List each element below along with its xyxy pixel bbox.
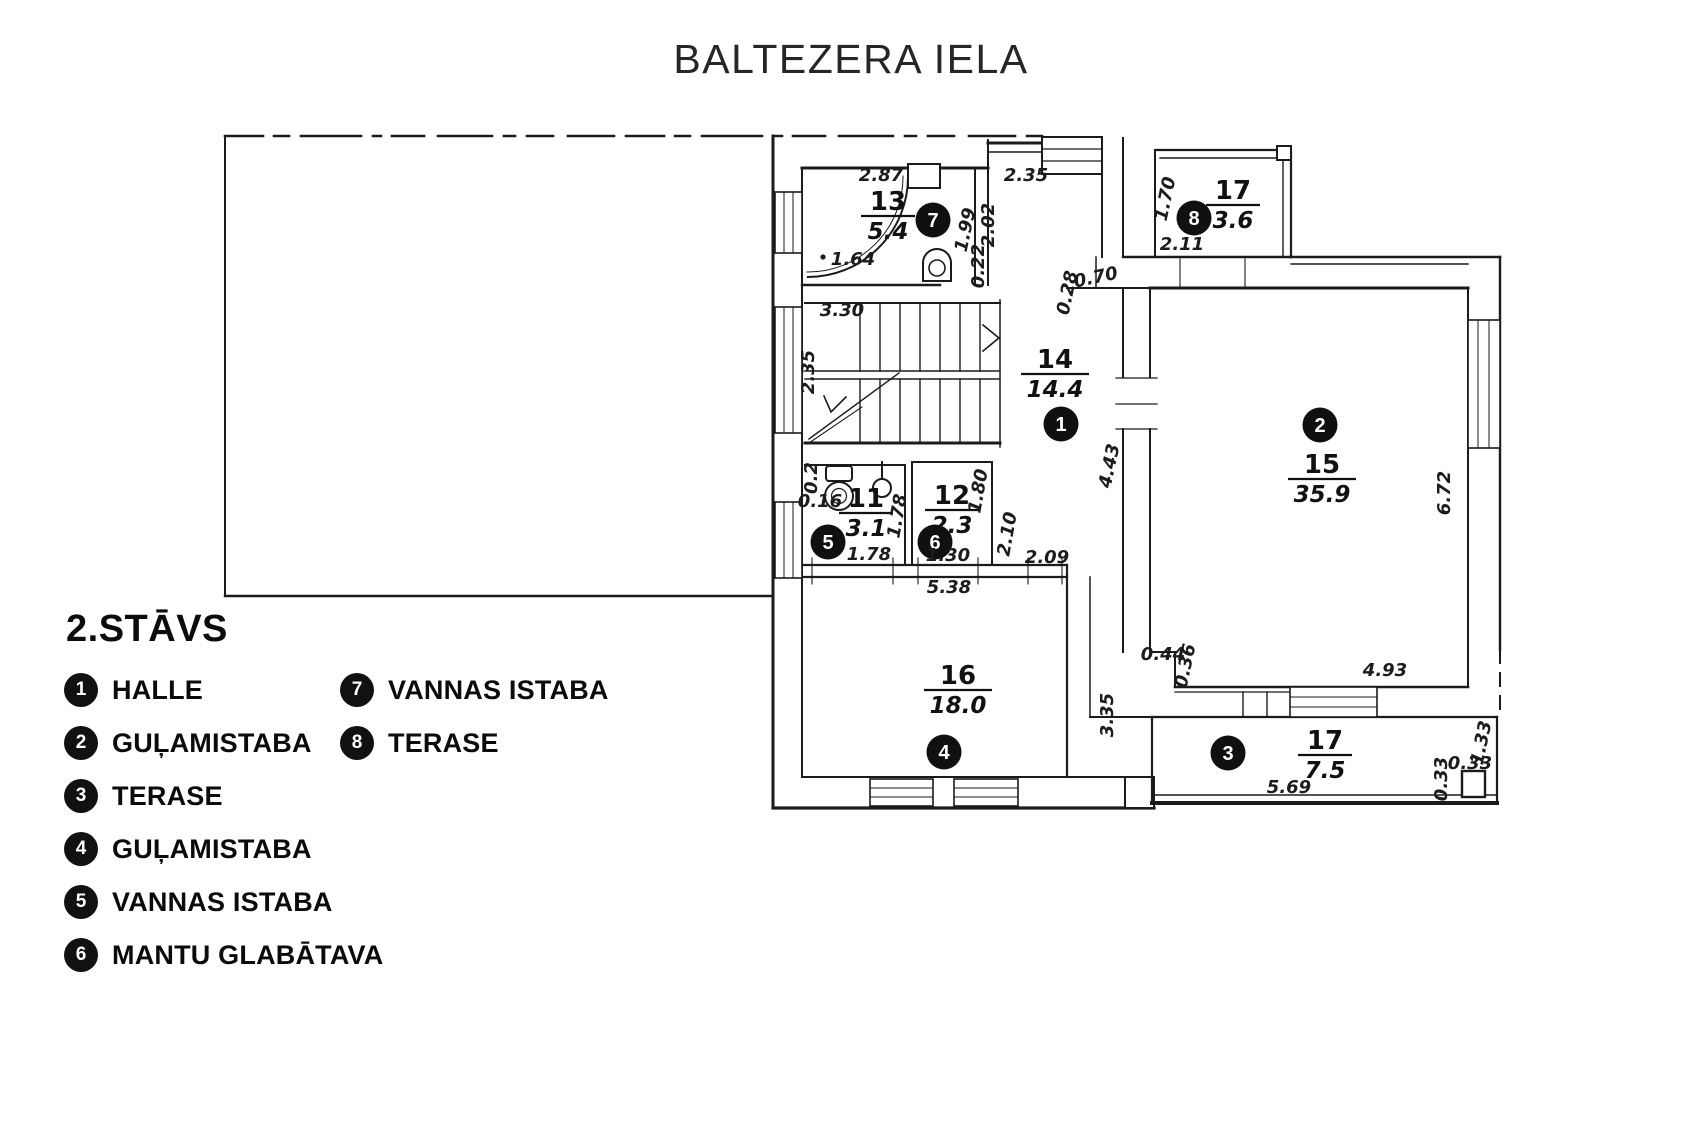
legend-item-5: 5VANNAS ISTABA <box>64 885 340 919</box>
legend-item-1: 1HALLE <box>64 673 340 707</box>
legend-column-1: 1HALLE2GUĻAMISTABA3TERASE4GUĻAMISTABA5VA… <box>64 673 340 991</box>
room-number-badge: 6 <box>64 938 98 972</box>
dimension-label: 2.87 <box>859 165 904 186</box>
room-area: 3.6 <box>1213 208 1254 234</box>
dimension-label: 1.78 <box>883 492 911 539</box>
room-number: 14 <box>1037 345 1073 375</box>
stairs-icon <box>805 303 1000 443</box>
room-label-13-badge-7: 135.47 <box>861 187 951 245</box>
room-number: 17 <box>1215 176 1251 206</box>
room-number-badge: 4 <box>64 832 98 866</box>
door-opening <box>1117 378 1156 428</box>
legend-columns: 1HALLE2GUĻAMISTABA3TERASE4GUĻAMISTABA5VA… <box>64 673 609 991</box>
dimension-label: 1.64 <box>831 249 875 270</box>
legend-item-8: 8TERASE <box>340 726 609 760</box>
dimension-label: 0.33 <box>1431 757 1452 801</box>
room-number-badge: 8 <box>340 726 374 760</box>
legend-label: GUĻAMISTABA <box>112 834 312 865</box>
room-number-badge: 5 <box>64 885 98 919</box>
dimension-label: 1.30 <box>926 545 970 566</box>
room-area: 18.0 <box>930 693 987 719</box>
plan-badge-number: 4 <box>938 742 950 764</box>
room-number: 13 <box>870 187 906 217</box>
room-number: 15 <box>1304 450 1340 480</box>
room-number-badge: 7 <box>340 673 374 707</box>
legend: 2.STĀVS 1HALLE2GUĻAMISTABA3TERASE4GUĻAMI… <box>64 608 609 991</box>
room-number: 17 <box>1307 726 1343 756</box>
legend-label: TERASE <box>388 728 499 759</box>
legend-item-6: 6MANTU GLABĀTAVA <box>64 938 340 972</box>
dimension-label: 0.28 <box>1053 269 1083 317</box>
dimension-label: 2.02 <box>978 203 999 247</box>
dimension-labels: 2.871.640.221.992.022.353.302.351.702.11… <box>798 165 1497 801</box>
legend-label: MANTU GLABĀTAVA <box>112 940 383 971</box>
dimension-label: 2.35 <box>798 350 819 394</box>
legend-label: VANNAS ISTABA <box>388 675 609 706</box>
room-label-16-badge-4: 1618.04 <box>924 661 992 770</box>
dimension-label: 0.2 <box>801 462 822 494</box>
dimension-label: 2.11 <box>1160 234 1204 255</box>
plan-badge-number: 2 <box>1314 415 1325 437</box>
room-number: 16 <box>940 661 976 691</box>
dimension-label: 5.38 <box>927 577 971 598</box>
room-label-17-badge-3: 177.53 <box>1211 726 1353 784</box>
legend-item-3: 3TERASE <box>64 779 340 813</box>
room-label-15-badge-2: 1535.92 <box>1288 408 1356 509</box>
room-area: 3.1 <box>846 516 887 542</box>
dimension-label: 6.72 <box>1434 471 1455 515</box>
plan-badge-number: 1 <box>1055 414 1066 436</box>
legend-item-4: 4GUĻAMISTABA <box>64 832 340 866</box>
dimension-label: 5.69 <box>1267 777 1311 798</box>
plan-badge-number: 5 <box>822 532 833 554</box>
plan-badge-number: 8 <box>1188 208 1199 230</box>
dimension-label: 2.35 <box>1004 165 1048 186</box>
dimension-label: 4.43 <box>1095 442 1125 491</box>
room-labels: 135.471414.41173.681535.92113.15122.3616… <box>811 176 1357 784</box>
dimension-label: 2.10 <box>993 510 1021 557</box>
dimension-label: 3.35 <box>1097 693 1118 737</box>
column-post <box>1462 771 1485 797</box>
legend-item-7: 7VANNAS ISTABA <box>340 673 609 707</box>
plan-badge-number: 7 <box>927 210 938 232</box>
legend-label: VANNAS ISTABA <box>112 887 333 918</box>
room-number: 11 <box>848 484 884 514</box>
vent-box <box>908 164 940 188</box>
legend-label: TERASE <box>112 781 223 812</box>
room-number-badge: 1 <box>64 673 98 707</box>
exterior-steps <box>1042 137 1102 174</box>
legend-item-2: 2GUĻAMISTABA <box>64 726 340 760</box>
sink-icon <box>923 249 951 281</box>
dimension-label: 1.80 <box>964 467 992 514</box>
plan-badge-number: 3 <box>1222 743 1233 765</box>
dimension-label: 3.30 <box>820 300 864 321</box>
room-area: 14.4 <box>1027 377 1084 403</box>
floor-heading: 2.STĀVS <box>66 608 609 651</box>
room-label-14-badge-1: 1414.41 <box>1021 345 1089 442</box>
room-area: 35.9 <box>1294 482 1351 508</box>
dimension-label: 1.78 <box>847 544 891 565</box>
room-number-badge: 3 <box>64 779 98 813</box>
stairs-up-chevron-icon <box>983 325 999 351</box>
room-area: 5.4 <box>868 219 909 245</box>
drain-dot <box>820 254 825 259</box>
legend-column-2: 7VANNAS ISTABA8TERASE <box>340 673 609 779</box>
room-number-badge: 2 <box>64 726 98 760</box>
dimension-label: 2.09 <box>1025 547 1069 568</box>
legend-label: HALLE <box>112 675 203 706</box>
legend-label: GUĻAMISTABA <box>112 728 312 759</box>
dimension-label: 4.93 <box>1362 660 1407 681</box>
stairs-direction-arrow <box>824 396 846 412</box>
room-label-17-badge-8: 173.68 <box>1177 176 1261 236</box>
terrace-8-walls <box>1123 146 1291 257</box>
